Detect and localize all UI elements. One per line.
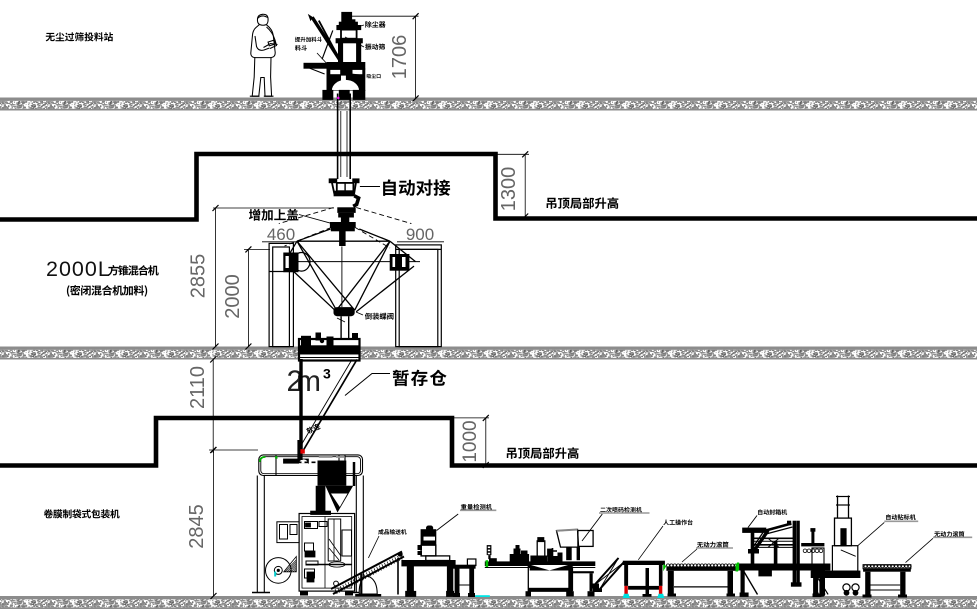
svg-text:1000: 1000	[460, 420, 481, 462]
svg-text:2110: 2110	[187, 366, 209, 409]
svg-text:2845: 2845	[186, 504, 208, 549]
svg-text:2000L: 2000L	[46, 257, 111, 281]
svg-text:2m: 2m	[287, 365, 322, 398]
svg-text:900: 900	[406, 225, 434, 244]
svg-text:3: 3	[323, 366, 331, 382]
svg-text:1300: 1300	[498, 167, 520, 212]
svg-text:2855: 2855	[188, 254, 210, 299]
svg-text:2000: 2000	[222, 274, 244, 319]
svg-text:460: 460	[267, 225, 295, 244]
svg-text:1706: 1706	[389, 35, 411, 80]
